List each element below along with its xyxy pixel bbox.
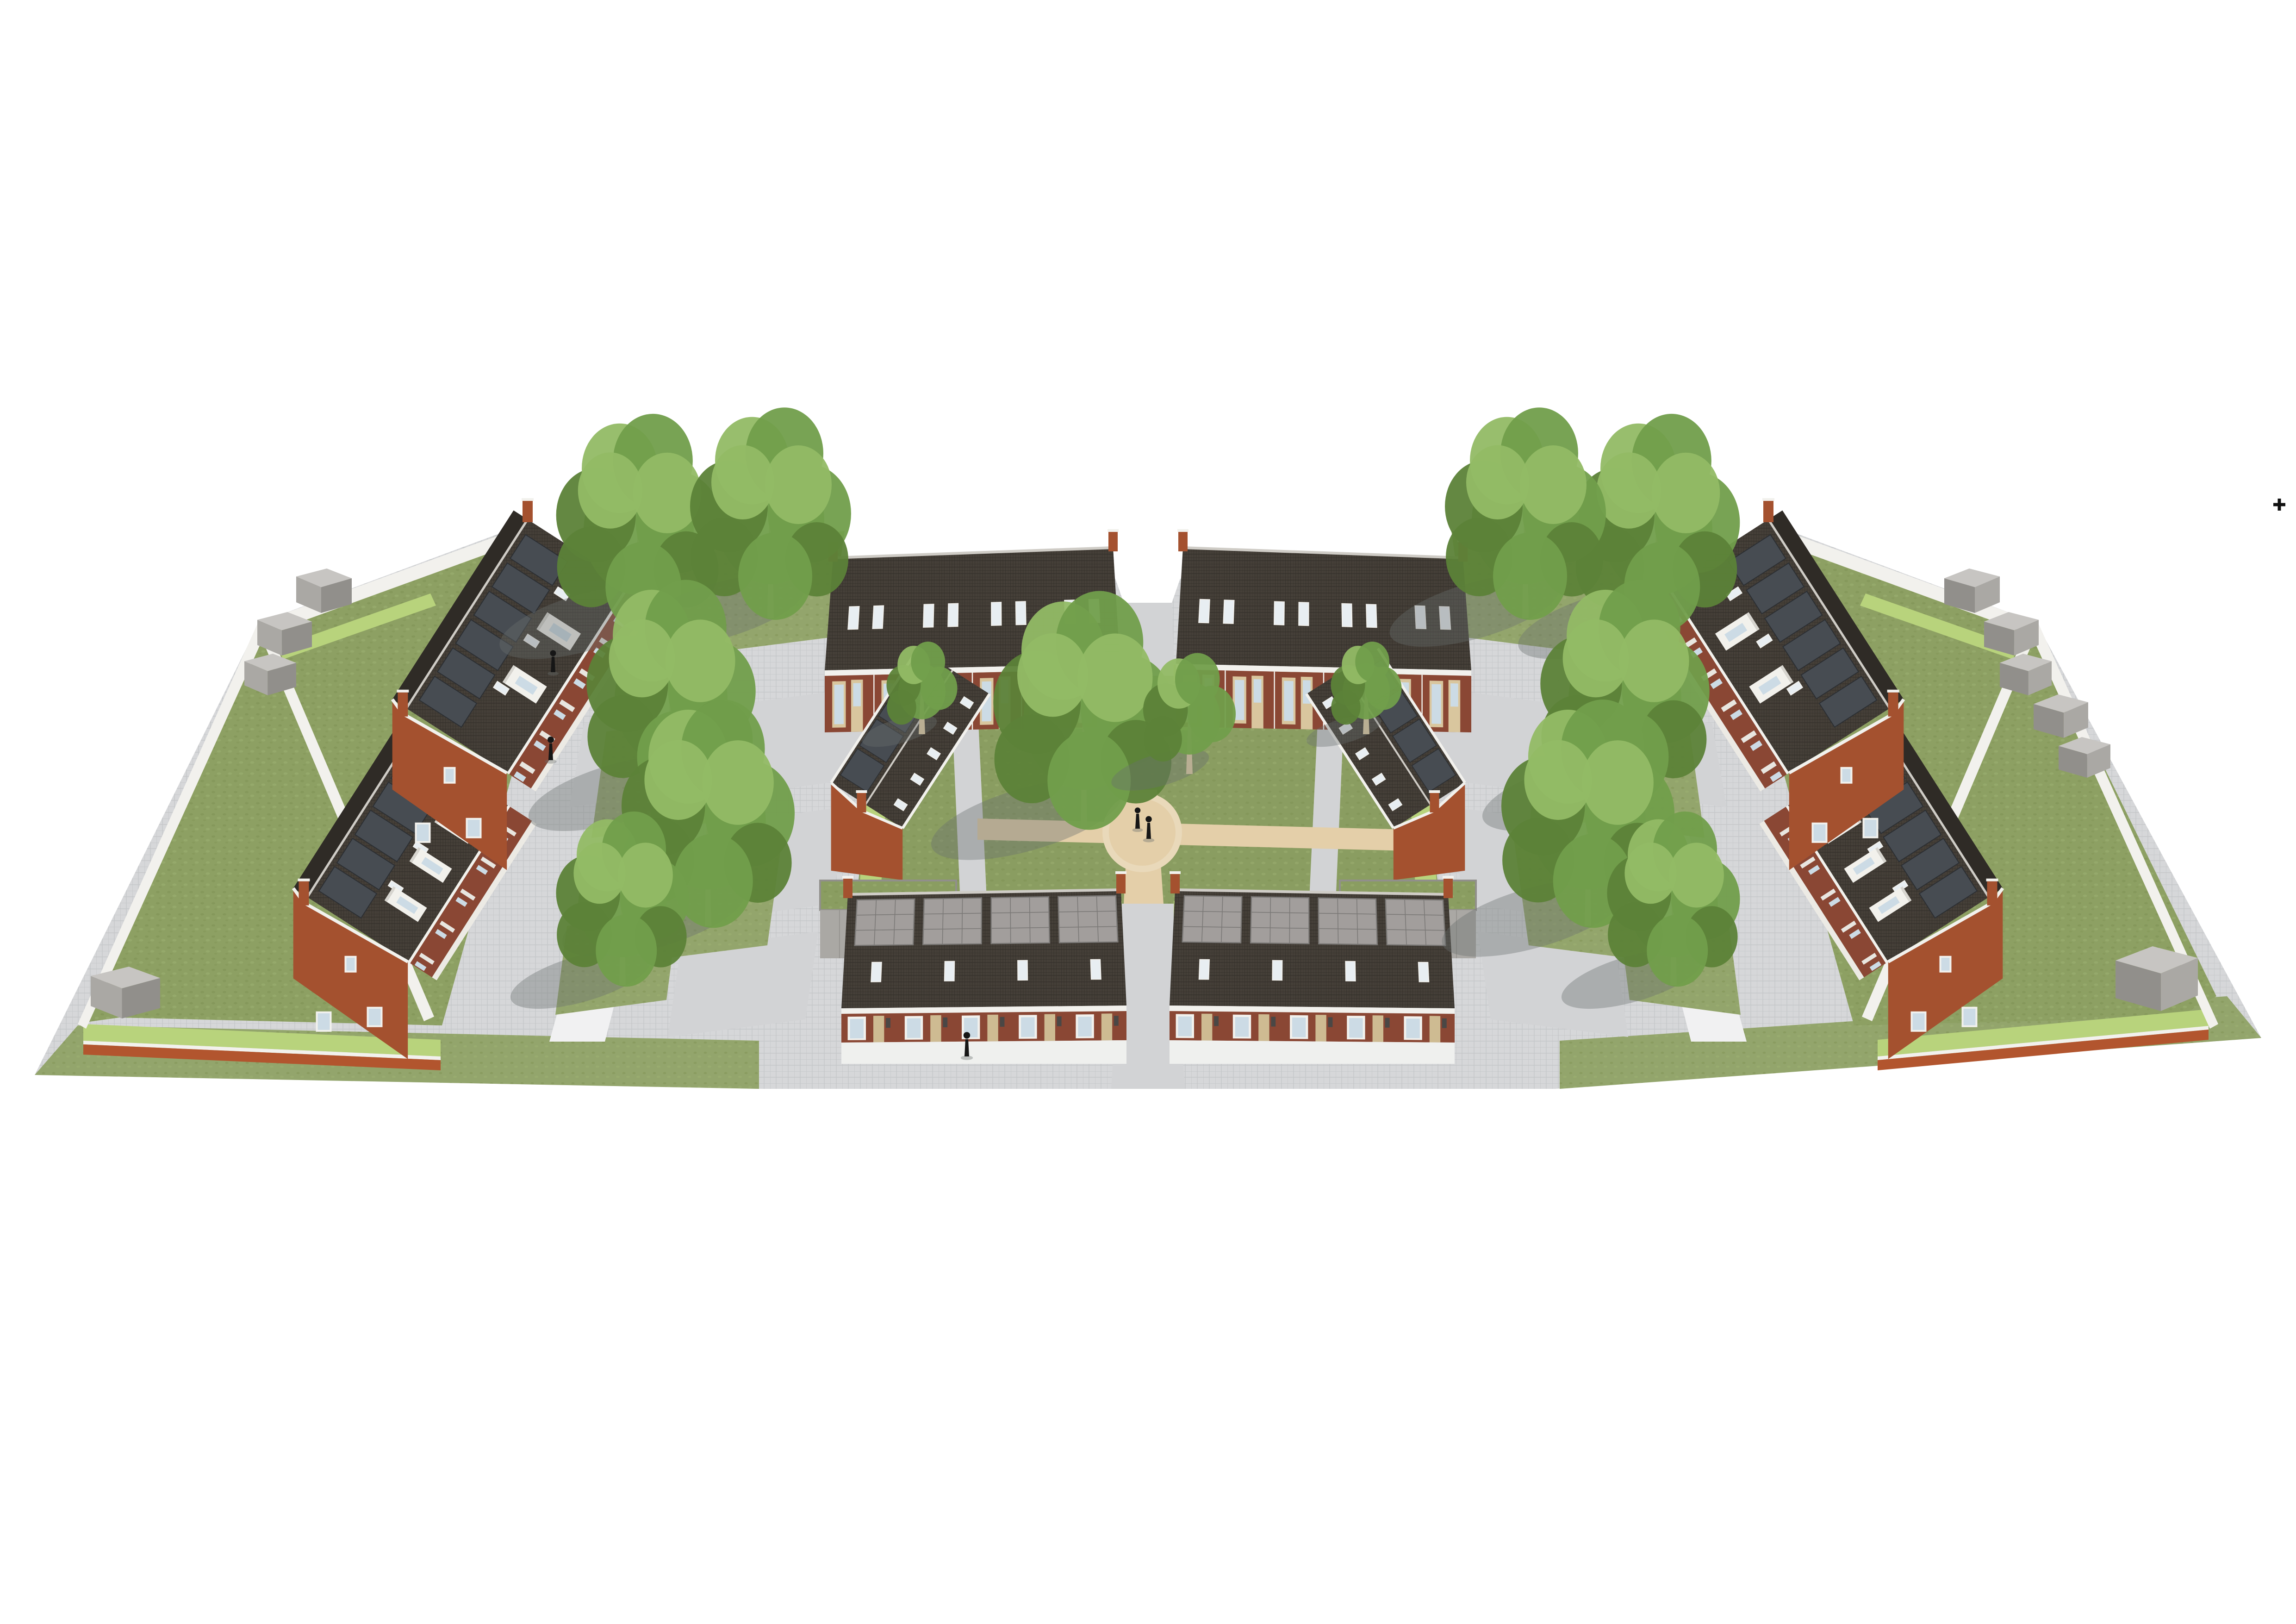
top-left-building-roof-window bbox=[848, 606, 859, 629]
bottom-right-building-roof-window bbox=[1345, 962, 1355, 981]
street-tree-foliage bbox=[1493, 532, 1567, 620]
inner-gable-house-left-chimney bbox=[857, 793, 866, 812]
street-tree-foliage bbox=[1524, 740, 1592, 820]
street-tree-foliage bbox=[618, 843, 673, 907]
top-right-building-window bbox=[1235, 680, 1244, 720]
bottom-right-building-door bbox=[1201, 1014, 1212, 1041]
bottom-left-building-meter-box bbox=[886, 1018, 890, 1028]
bottom-right-building-solar-array bbox=[1319, 898, 1377, 945]
bottom-right-building-chimney-cap bbox=[1443, 876, 1454, 879]
bottom-left-building-door bbox=[987, 1015, 998, 1042]
street-tree-foliage bbox=[633, 453, 702, 533]
garden-tree-small-foliage bbox=[887, 690, 916, 725]
top-right-building-door-glass bbox=[1254, 679, 1262, 703]
street-tree-foliage bbox=[738, 532, 812, 620]
top-right-building-downpipe bbox=[1274, 672, 1275, 729]
left-row-upper-gable-glass bbox=[468, 820, 480, 837]
left-row-upper-chimney bbox=[398, 693, 408, 717]
bottom-right-building-roof-window bbox=[1199, 960, 1209, 980]
street-tree-foliage bbox=[1563, 619, 1629, 698]
right-row-lower-chimney-cap bbox=[1986, 879, 1998, 881]
bottom-left-building-door bbox=[1045, 1014, 1055, 1041]
bottom-left-building-roof-window bbox=[1018, 961, 1027, 981]
person-head bbox=[1135, 807, 1140, 813]
top-right-building-chimney bbox=[1178, 532, 1188, 551]
bottom-left-building-solar-array bbox=[923, 898, 982, 945]
street-tree-foliage bbox=[573, 843, 625, 904]
street-tree-foliage bbox=[1624, 843, 1676, 904]
site-render bbox=[0, 0, 2296, 1624]
street-tree-foliage bbox=[1619, 619, 1689, 702]
top-left-building-chimney bbox=[1108, 532, 1118, 551]
left-row-upper-chimney bbox=[523, 501, 533, 522]
bottom-right-building-chimney bbox=[1444, 879, 1453, 898]
street-tree-foliage bbox=[1647, 915, 1708, 987]
bottom-right-building-window bbox=[1349, 1018, 1363, 1038]
bottom-right-building-meter-box bbox=[1271, 1017, 1276, 1026]
bottom-left-building-door bbox=[930, 1015, 941, 1042]
right-row-lower-gable-glass bbox=[1964, 1009, 1976, 1025]
top-right-building-roof-window bbox=[1274, 602, 1284, 625]
top-right-building-chimney-cap bbox=[1177, 529, 1188, 532]
left-row-upper-chimney-cap bbox=[397, 690, 409, 693]
top-right-building-window bbox=[1284, 681, 1293, 721]
bottom-left-building-solar-array bbox=[855, 899, 915, 946]
top-left-building-roof-window bbox=[923, 604, 934, 627]
street-tree-foliage bbox=[665, 619, 735, 702]
left-row-upper-gable-glass bbox=[446, 769, 454, 782]
bottom-right-building-door bbox=[1258, 1014, 1269, 1041]
top-right-building-roof-window bbox=[1366, 605, 1377, 628]
street-tree-foliage bbox=[765, 445, 832, 524]
bottom-left-building-sidewalk bbox=[841, 1040, 1126, 1064]
garden-tree-small-foliage bbox=[1331, 690, 1360, 725]
street-tree-foliage bbox=[1597, 452, 1661, 528]
top-left-building-chimney-cap bbox=[1108, 529, 1119, 532]
person-head bbox=[964, 1032, 970, 1038]
bottom-right-building-meter-box bbox=[1385, 1018, 1390, 1028]
bottom-right-building-chimney bbox=[1170, 874, 1180, 893]
bottom-left-building-chimney bbox=[1116, 874, 1126, 893]
top-left-building-roof-window bbox=[873, 606, 884, 629]
bottom-right-building-window bbox=[1292, 1018, 1306, 1037]
bottom-left-building-meter-box bbox=[1057, 1016, 1062, 1026]
bottom-right-building-door bbox=[1430, 1016, 1440, 1042]
bottom-right-building-door bbox=[1315, 1015, 1326, 1042]
left-row-lower-gable-glass bbox=[369, 1009, 381, 1025]
bottom-right-building-solar-array bbox=[1386, 899, 1446, 946]
registration-mark bbox=[2278, 499, 2281, 511]
bottom-left-building-solar-array bbox=[991, 897, 1050, 943]
bottom-left-building-door bbox=[1101, 1013, 1112, 1040]
person-head bbox=[550, 650, 556, 656]
street-tree-foliage bbox=[1466, 445, 1529, 519]
bottom-left-building-meter-box bbox=[943, 1018, 947, 1027]
right-row-lower-gable-glass bbox=[1941, 958, 1950, 971]
bottom-right-building-solar-array bbox=[1251, 897, 1309, 943]
right-row-upper-chimney-cap bbox=[1887, 690, 1899, 693]
right-row-upper-chimney bbox=[1763, 501, 1773, 522]
bottom-left-building-roof-window bbox=[871, 962, 882, 982]
inner-gable-house-left-chimney-cap bbox=[856, 790, 867, 793]
bottom-right-building-meter-box bbox=[1328, 1017, 1333, 1027]
left-row-lower-chimney bbox=[299, 881, 309, 906]
courtyard-tree-large-foliage bbox=[1078, 633, 1153, 722]
person-head bbox=[548, 737, 554, 743]
bottom-left-building-meter-box bbox=[1000, 1017, 1005, 1027]
render-root bbox=[35, 407, 2285, 1089]
bottom-right-building-window bbox=[1235, 1017, 1249, 1037]
top-left-building-roof-window bbox=[991, 602, 1001, 625]
bottom-right-building-chimney-cap bbox=[1170, 871, 1181, 874]
bottom-left-building-window bbox=[907, 1018, 921, 1038]
top-left-building-door-glass bbox=[853, 683, 861, 706]
bottom-right-building-sidewalk bbox=[1170, 1040, 1455, 1064]
bottom-left-building-roof-window bbox=[1091, 960, 1101, 980]
bottom-left-building-chimney bbox=[843, 879, 852, 898]
street-tree-foliage bbox=[702, 740, 774, 825]
bottom-right-building-door bbox=[1373, 1015, 1383, 1042]
street-tree-foliage bbox=[609, 619, 675, 698]
bottom-right-building-solar-array bbox=[1182, 896, 1242, 943]
bottom-left-building-solar-array bbox=[1058, 896, 1118, 943]
bottom-right-building-roof-window bbox=[1272, 961, 1282, 981]
bottom-left-building-window bbox=[1021, 1017, 1035, 1037]
left-row-lower-gable-glass bbox=[347, 958, 355, 971]
street-tree-foliage bbox=[578, 452, 642, 528]
street-tree-foliage bbox=[1582, 740, 1654, 825]
right-row-upper-gable-glass bbox=[1842, 769, 1851, 782]
inner-gable-house-right-chimney bbox=[1430, 793, 1439, 812]
street-tree-foliage bbox=[711, 445, 774, 519]
bottom-left-building-roof-window bbox=[945, 962, 954, 981]
bottom-left-building-window bbox=[1078, 1017, 1092, 1037]
top-right-building-door-glass bbox=[1450, 683, 1458, 706]
bottom-left-building-chimney-cap bbox=[842, 876, 853, 879]
inner-gable-house-right-chimney-cap bbox=[1429, 790, 1440, 793]
top-right-building-roof-window bbox=[1342, 604, 1352, 627]
bottom-right-building-meter-box bbox=[1442, 1018, 1447, 1028]
bottom-right-building-window bbox=[1178, 1017, 1192, 1037]
bottom-left-building-meter-box bbox=[1114, 1016, 1119, 1026]
street-tree-foliage bbox=[1520, 445, 1587, 524]
bottom-left-building-array-line bbox=[1010, 897, 1011, 943]
person-head bbox=[1145, 816, 1151, 822]
page bbox=[0, 0, 2296, 1624]
right-row-upper-gable-glass bbox=[1814, 824, 1826, 841]
street-tree-foliage bbox=[596, 915, 657, 987]
top-right-building-window bbox=[1431, 684, 1441, 724]
left-row-lower-chimney-cap bbox=[298, 879, 310, 881]
top-left-building-roof-window bbox=[948, 604, 958, 627]
bottom-left-building-door bbox=[873, 1016, 884, 1042]
top-left-building-roof-window bbox=[1016, 601, 1026, 625]
courtyard-tree-large-foliage bbox=[1017, 633, 1088, 717]
street-tree-foliage bbox=[1652, 453, 1720, 533]
top-right-building-roof-window bbox=[1299, 602, 1308, 625]
right-row-lower-gable-glass bbox=[1913, 1013, 1925, 1030]
right-row-upper-chimney-cap bbox=[1762, 498, 1774, 501]
left-row-upper-chimney-cap bbox=[522, 498, 534, 501]
bottom-left-building-chimney-cap bbox=[1115, 871, 1126, 874]
bottom-left-building-window bbox=[850, 1019, 864, 1039]
street-tree-foliage bbox=[644, 740, 712, 820]
street-tree-foliage bbox=[1669, 843, 1724, 907]
bottom-right-building-window bbox=[1406, 1018, 1420, 1038]
courtyard-tree-small-foliage bbox=[1175, 653, 1220, 706]
right-row-upper-chimney bbox=[1888, 693, 1898, 717]
garden-tree-small-foliage bbox=[911, 642, 945, 682]
right-row-upper-gable-glass bbox=[1865, 820, 1877, 837]
courtyard-tree-small-foliage bbox=[1144, 716, 1182, 762]
right-row-lower-chimney bbox=[1987, 881, 1997, 906]
top-right-building-roof-window bbox=[1199, 600, 1210, 623]
top-left-building-window bbox=[834, 685, 844, 725]
garden-tree-small-foliage bbox=[1355, 642, 1389, 682]
left-row-upper-gable-glass bbox=[417, 824, 429, 841]
top-right-building-roof-window bbox=[1223, 600, 1234, 624]
bottom-right-building-roof-window bbox=[1419, 962, 1429, 982]
person-shadow bbox=[1132, 828, 1143, 832]
bottom-right-building-meter-box bbox=[1214, 1016, 1219, 1026]
left-row-lower-gable-glass bbox=[318, 1013, 330, 1030]
